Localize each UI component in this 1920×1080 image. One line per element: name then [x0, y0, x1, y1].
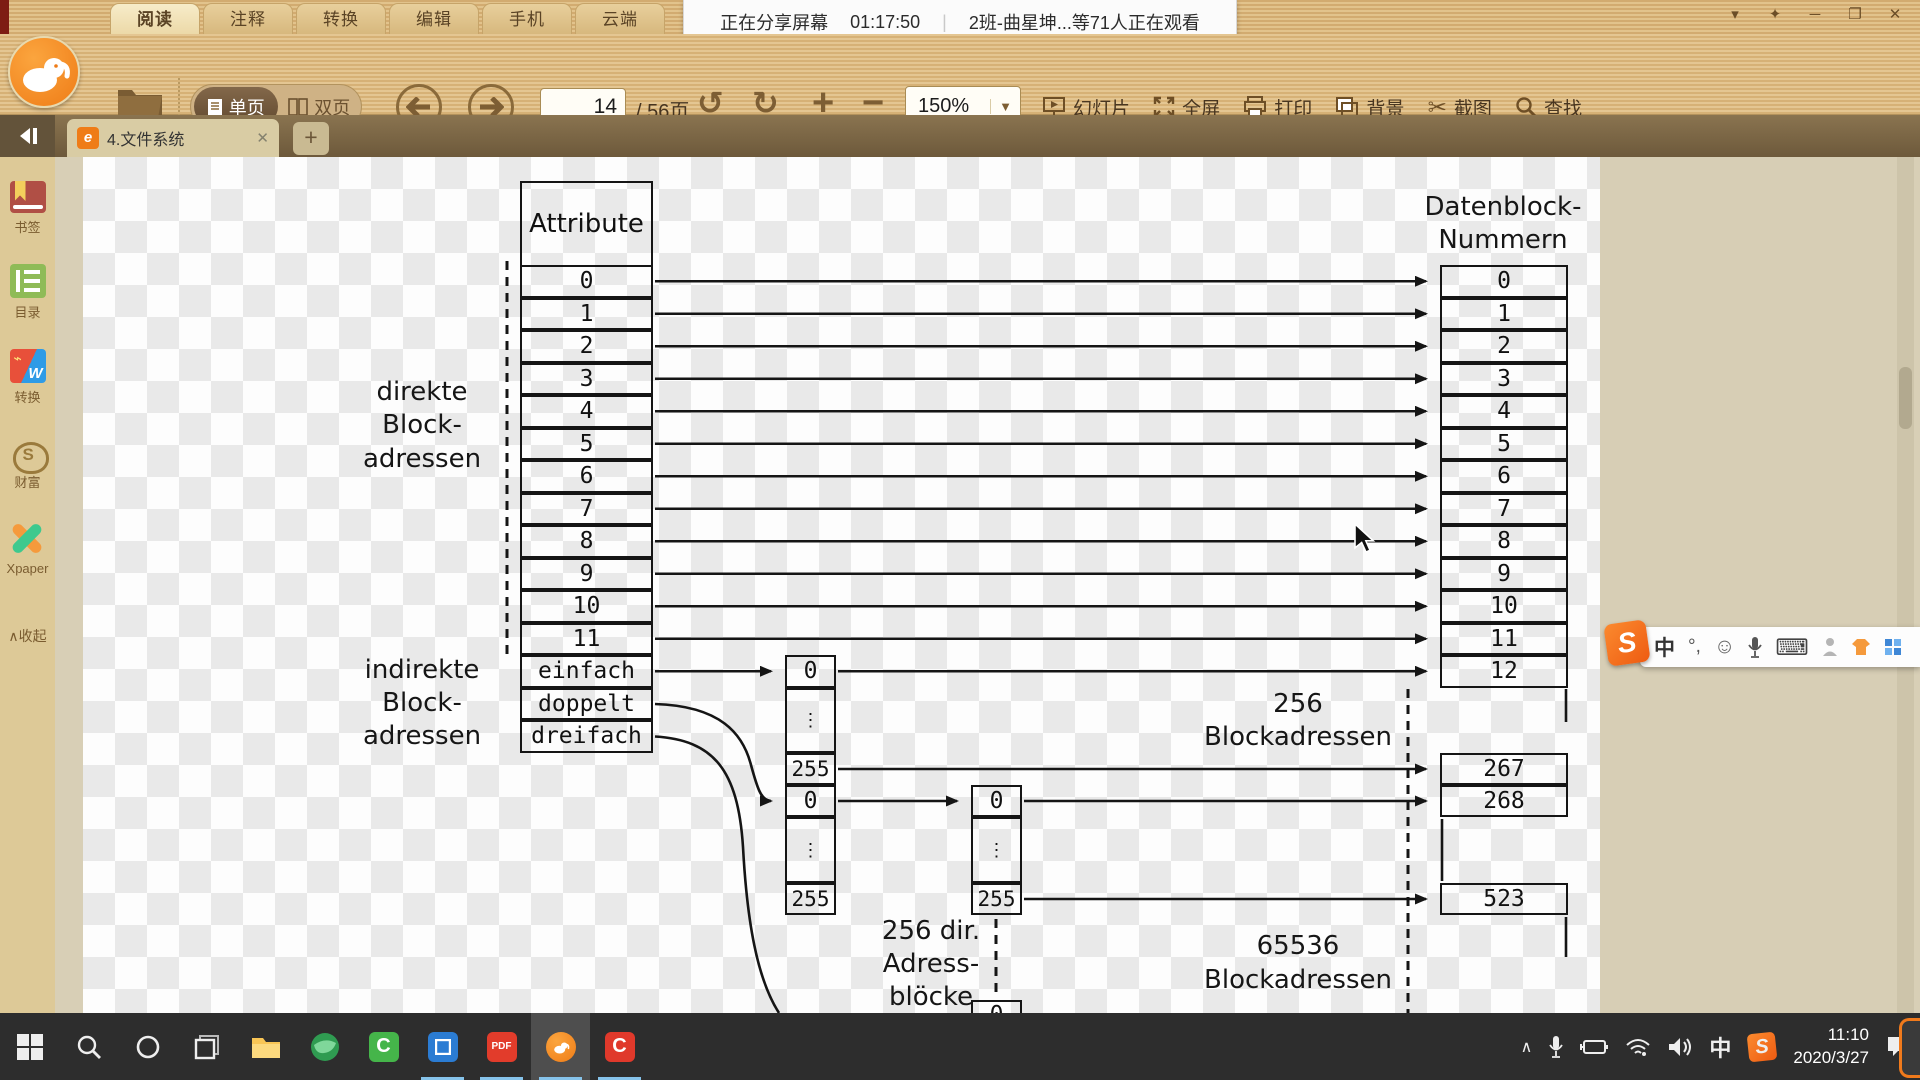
- search-icon: [76, 1034, 102, 1060]
- label-256-line: Blockadressen: [1204, 722, 1392, 752]
- windows-logo-icon: [17, 1034, 43, 1060]
- new-tab-button[interactable]: +: [293, 122, 329, 155]
- inode-cell: 8: [520, 525, 653, 558]
- inode-attribute-header: Attribute: [520, 181, 653, 267]
- sidebar-item-wealth[interactable]: 财富: [11, 434, 45, 491]
- inode-cell: 2: [520, 330, 653, 363]
- datablock-header-line: Datenblock-: [1425, 192, 1582, 222]
- inode-cell: 9: [520, 558, 653, 591]
- datablock-cell: 4: [1440, 395, 1568, 428]
- task-view-button[interactable]: [177, 1013, 236, 1080]
- system-tray: ∧ 中 S 11:10 2020/3/27: [1521, 1013, 1912, 1080]
- menu-tab-annotate[interactable]: 注释: [203, 3, 293, 34]
- chevron-down-icon[interactable]: ▼: [990, 99, 1020, 114]
- label-256-line: 256: [1273, 689, 1323, 719]
- window-controls: ▾ ✦ ─ ❐ ✕: [1722, 4, 1908, 26]
- taskbar-clock[interactable]: 11:10 2020/3/27: [1793, 1024, 1869, 1070]
- green-c-icon: C: [369, 1032, 399, 1062]
- sidebar-item-label: 目录: [14, 302, 40, 321]
- sidebar-item-toc[interactable]: 目录: [10, 264, 46, 321]
- clock-time: 11:10: [1793, 1024, 1869, 1047]
- ime-punctuation-mode[interactable]: °,: [1688, 636, 1701, 658]
- green-browser-icon: [310, 1032, 340, 1062]
- reader-app-button[interactable]: [531, 1013, 590, 1080]
- sharing-divider: |: [942, 12, 947, 33]
- app-green-c-button[interactable]: C: [354, 1013, 413, 1080]
- inode-cell: doppelt: [520, 688, 653, 721]
- pdf-app-icon: PDF: [487, 1032, 517, 1062]
- pdf-file-icon: e: [77, 127, 99, 149]
- datablock-cell: 523: [1440, 883, 1568, 915]
- datablock-cell: 3: [1440, 363, 1568, 396]
- datablock-cell: 11: [1440, 623, 1568, 656]
- single-page-icon: [207, 98, 223, 116]
- app-red-c-button[interactable]: C: [590, 1013, 649, 1080]
- sharing-status: 正在分享屏幕: [720, 9, 828, 35]
- diagram-connectors: [83, 157, 1600, 1013]
- single-indirect-last: 255: [785, 753, 836, 785]
- close-button[interactable]: ✕: [1882, 4, 1908, 26]
- datablock-header-line: Nummern: [1438, 225, 1567, 255]
- close-tab-icon[interactable]: ✕: [256, 129, 269, 147]
- datablock-cell: 10: [1440, 590, 1568, 623]
- sidebar-collapse-button[interactable]: [0, 115, 55, 157]
- menu-dropdown-icon[interactable]: ▾: [1722, 4, 1748, 26]
- direct-label-line: adressen: [363, 444, 481, 474]
- menu-tabs: 阅读 注释 转换 编辑 手机 云端: [110, 3, 665, 34]
- indirect-label-line: adressen: [363, 721, 481, 751]
- file-explorer-icon: [251, 1034, 281, 1060]
- inode-cell: 0: [520, 265, 653, 298]
- start-button[interactable]: [0, 1013, 59, 1080]
- bookmark-icon: [10, 181, 46, 213]
- sidebar-fold-button[interactable]: ∧收起: [8, 626, 46, 646]
- datablock-cell: 8: [1440, 525, 1568, 558]
- tray-expand-icon[interactable]: ∧: [1521, 1037, 1533, 1057]
- inode-cell: 4: [520, 395, 653, 428]
- cortana-button[interactable]: [118, 1013, 177, 1080]
- datablock-cell: 2: [1440, 330, 1568, 363]
- indirect-label-line: indirekte: [365, 655, 480, 685]
- ime-toolbar: 中 °, ☺ ⌨: [1640, 627, 1920, 667]
- menu-tab-edit[interactable]: 编辑: [389, 3, 479, 34]
- file-explorer-button[interactable]: [236, 1013, 295, 1080]
- inode-indirect-rows: einfachdoppeltdreifach: [520, 655, 653, 753]
- datablock-cell: 268: [1440, 785, 1568, 817]
- direct-label-line: direkte: [376, 377, 467, 407]
- sidebar: 书签 目录 转换 财富 Xpaper ∧收起: [0, 157, 55, 1013]
- document-tab[interactable]: e 4.文件系统 ✕: [67, 119, 279, 157]
- battery-icon[interactable]: [1580, 1038, 1608, 1056]
- vertical-dots: ⋮: [785, 817, 836, 883]
- triple-indirect-partial: 0: [971, 1000, 1022, 1013]
- menu-tab-cloud[interactable]: 云端: [575, 3, 665, 34]
- inode-cell: 6: [520, 460, 653, 493]
- sidebar-item-label: Xpaper: [7, 561, 49, 576]
- ime-skin-icon[interactable]: [1851, 638, 1871, 656]
- red-c-icon: C: [605, 1032, 635, 1062]
- label-256dir-line: Adress-: [883, 949, 979, 979]
- menu-tab-mobile[interactable]: 手机: [482, 3, 572, 34]
- taskbar-search-button[interactable]: [59, 1013, 118, 1080]
- label-65536-line: 65536: [1257, 931, 1340, 961]
- ime-mic-icon[interactable]: [1748, 636, 1762, 658]
- blue-app-icon: [428, 1032, 458, 1062]
- sidebar-item-bookmarks[interactable]: 书签: [10, 181, 46, 236]
- inode-cell: einfach: [520, 655, 653, 688]
- ime-indicator[interactable]: 中: [1709, 1031, 1731, 1063]
- vertical-dots: ⋮: [971, 817, 1022, 883]
- table-of-contents-icon: [10, 264, 46, 298]
- app-logo[interactable]: [8, 36, 80, 108]
- elephant-mascot-icon: [10, 38, 78, 106]
- browser-green-button[interactable]: [295, 1013, 354, 1080]
- menu-tab-convert[interactable]: 转换: [296, 3, 386, 34]
- ime-keyboard-icon[interactable]: ⌨: [1775, 634, 1808, 661]
- sidebar-item-label: 书签: [14, 217, 40, 236]
- datablock-cell: 5: [1440, 428, 1568, 461]
- inode-cell: 11: [520, 623, 653, 656]
- sharing-viewers: 2班-曲星坤...等71人正在观看: [969, 9, 1200, 35]
- sidebar-item-label: 转换: [14, 387, 40, 406]
- document-tabbar: e 4.文件系统 ✕ +: [55, 115, 1920, 157]
- sogou-logo[interactable]: S: [1603, 619, 1650, 666]
- inode-direct-rows: 01234567891011: [520, 265, 653, 655]
- back-arrow-icon: [406, 97, 432, 117]
- label-256dir-line: 256 dir.: [882, 916, 980, 946]
- pdf-to-word-icon: [10, 349, 46, 383]
- double-l1-last: 255: [785, 883, 836, 915]
- sharing-elapsed-time: 01:17:50: [850, 12, 920, 33]
- sidebar-item-convert[interactable]: 转换: [10, 349, 46, 406]
- xpaper-icon: [8, 519, 46, 557]
- direct-label-line: Block-: [382, 410, 462, 440]
- vertical-scrollbar[interactable]: [1897, 157, 1914, 1013]
- double-l1-first: 0: [785, 785, 836, 817]
- inode-cell: 3: [520, 363, 653, 396]
- vertical-dots: ⋮: [785, 688, 836, 754]
- collapse-left-icon: [16, 126, 40, 146]
- network-icon[interactable]: [1625, 1037, 1651, 1057]
- single-indirect-first: 0: [785, 655, 836, 688]
- datablock-rows: 0123456789101112: [1440, 265, 1568, 688]
- double-page-icon: [288, 98, 308, 116]
- floating-corner-widget[interactable]: [1899, 1018, 1920, 1078]
- indirect-label-line: Block-: [382, 688, 462, 718]
- maximize-button[interactable]: ❐: [1842, 4, 1868, 26]
- datablock-cell: 1: [1440, 298, 1568, 331]
- label-256dir-line: blöcke: [889, 982, 973, 1012]
- mouse-cursor: [1355, 524, 1373, 552]
- datablock-cell: 7: [1440, 493, 1568, 526]
- application-window: 阅读 注释 转换 编辑 手机 云端 ▾ ✦ ─ ❐ ✕ 正在分享屏幕 01:17…: [0, 0, 1920, 1080]
- fold-label: 收起: [19, 628, 47, 644]
- pdf-app-button[interactable]: PDF: [472, 1013, 531, 1080]
- datablock-cell: 9: [1440, 558, 1568, 591]
- sidebar-item-xpaper[interactable]: Xpaper: [7, 519, 49, 576]
- document-tab-title: 4.文件系统: [107, 126, 248, 150]
- cortana-icon: [135, 1034, 161, 1060]
- double-l2-first: 0: [971, 785, 1022, 817]
- microphone-icon[interactable]: [1549, 1035, 1563, 1059]
- toolbar: 单页 双页 14 / 56页 ↺ ↻ + − 15: [0, 34, 1920, 115]
- clock-date: 2020/3/27: [1793, 1047, 1869, 1070]
- double-l2-last: 255: [971, 883, 1022, 915]
- menu-tab-read[interactable]: 阅读: [110, 3, 200, 34]
- datablock-rows-523: 523: [1440, 883, 1568, 915]
- ime-toolbox-icon[interactable]: [1884, 638, 1902, 656]
- inode-cell: 7: [520, 493, 653, 526]
- datablock-cell: 267: [1440, 753, 1568, 785]
- viewer-background: [1600, 157, 1897, 1013]
- inode-cell: 10: [520, 590, 653, 623]
- datablock-rows-267: 267268: [1440, 753, 1568, 817]
- datablock-cell: 12: [1440, 655, 1568, 688]
- minimize-button[interactable]: ─: [1802, 4, 1828, 26]
- scrollbar-thumb[interactable]: [1899, 367, 1912, 429]
- task-view-icon: [194, 1034, 220, 1060]
- pdf-page-canvas[interactable]: Attribute 01234567891011 einfachdoppeltd…: [83, 157, 1600, 1013]
- datablock-cell: 0: [1440, 265, 1568, 298]
- ime-voice-gray-icon[interactable]: [1822, 637, 1838, 657]
- datablock-cell: 6: [1440, 460, 1568, 493]
- sogou-tray-icon[interactable]: S: [1747, 1031, 1778, 1062]
- sidebar-item-label: 财富: [14, 472, 40, 491]
- money-bag-icon: [11, 434, 45, 468]
- ime-chinese-mode[interactable]: 中: [1654, 632, 1675, 662]
- forward-arrow-icon: [478, 97, 504, 117]
- label-65536-line: Blockadressen: [1204, 965, 1392, 995]
- ime-emoji-icon[interactable]: ☺: [1714, 635, 1735, 659]
- volume-icon[interactable]: [1668, 1037, 1692, 1057]
- inode-cell: 5: [520, 428, 653, 461]
- inode-cell: dreifach: [520, 720, 653, 753]
- reader-mascot-icon: [546, 1032, 576, 1062]
- skin-icon[interactable]: ✦: [1762, 4, 1788, 26]
- inode-cell: 1: [520, 298, 653, 331]
- chevron-up-icon: ∧: [8, 628, 18, 644]
- app-blue-button[interactable]: [413, 1013, 472, 1080]
